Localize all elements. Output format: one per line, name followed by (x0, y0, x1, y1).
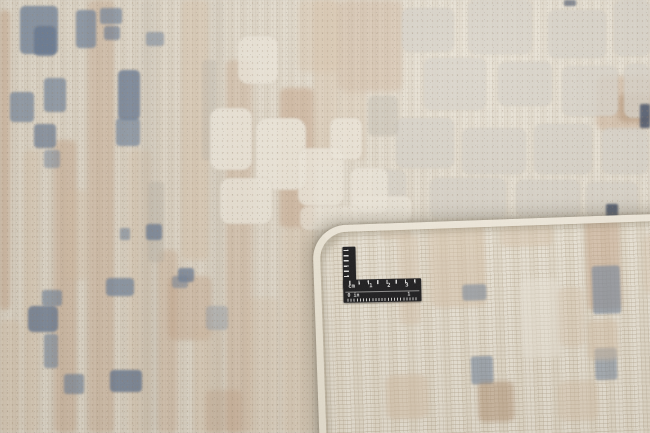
pattern-patch (592, 265, 622, 314)
pattern-patch (519, 277, 562, 358)
pattern-patch (76, 10, 96, 48)
pattern-patch (106, 278, 134, 296)
pattern-patch (338, 0, 402, 92)
pattern-patch (146, 224, 162, 240)
pattern-patch (564, 0, 576, 6)
pattern-patch (548, 10, 606, 58)
pattern-patch (24, 150, 38, 433)
rug-photo: cm 1 2 3 0 in 1 (0, 0, 650, 433)
pattern-patch (206, 306, 228, 330)
pattern-patch (116, 118, 140, 146)
pattern-patch (34, 124, 56, 148)
pattern-patch (110, 370, 142, 392)
pattern-patch (118, 70, 140, 120)
pattern-patch (64, 190, 88, 280)
ruler-cm-number: 1 (369, 284, 372, 290)
pattern-patch (516, 180, 580, 216)
pattern-patch (0, 320, 20, 433)
ruler-cm-number: 3 (405, 283, 408, 289)
pattern-patch (246, 298, 278, 433)
ruler-inch-scale: 0 in 1 (343, 291, 421, 303)
pattern-patch (500, 224, 553, 248)
pattern-patch (534, 124, 592, 174)
pattern-patch (368, 96, 398, 136)
pattern-patch (642, 233, 650, 294)
ruler-horizontal-arm: cm 1 2 3 0 in 1 (343, 278, 421, 303)
ruler-inch-number: 1 (407, 292, 410, 297)
pattern-patch (462, 128, 526, 174)
pattern-patch (558, 380, 599, 421)
pattern-patch (557, 287, 585, 348)
pattern-patch (640, 104, 650, 128)
pattern-patch (120, 228, 130, 240)
ruler: cm 1 2 3 0 in 1 (340, 243, 425, 307)
pattern-patch (148, 182, 164, 262)
pattern-patch (44, 334, 58, 368)
pattern-patch (298, 0, 340, 72)
pattern-patch (430, 178, 506, 218)
pattern-patch (44, 150, 60, 168)
pattern-patch (402, 8, 454, 52)
pattern-patch (42, 290, 62, 306)
pattern-patch (471, 356, 494, 385)
pattern-patch (44, 78, 66, 112)
pattern-patch (28, 306, 58, 332)
pattern-patch (104, 26, 120, 40)
pattern-patch (210, 108, 252, 170)
pattern-patch (385, 374, 429, 419)
pattern-patch (562, 66, 618, 116)
pattern-patch (100, 8, 122, 24)
pattern-patch (0, 10, 10, 310)
pattern-patch (380, 227, 410, 240)
pattern-patch (64, 374, 84, 394)
pattern-patch (396, 118, 454, 168)
pattern-patch (468, 0, 532, 54)
pattern-patch (34, 26, 56, 56)
pattern-patch (602, 128, 648, 174)
pattern-patch (424, 58, 486, 110)
ruler-inch-zero-label: 0 in (347, 293, 359, 298)
pattern-patch (172, 276, 188, 288)
pattern-patch (146, 32, 164, 46)
pattern-patch (220, 178, 272, 224)
pattern-patch (614, 0, 650, 56)
pattern-patch (478, 381, 515, 422)
pattern-patch (282, 228, 314, 433)
pattern-patch (330, 118, 362, 160)
ruler-cm-number: 2 (387, 284, 390, 290)
pattern-patch (88, 0, 114, 433)
pattern-patch (462, 284, 487, 301)
pattern-patch (10, 92, 34, 122)
pattern-patch (587, 319, 618, 360)
pattern-patch (238, 36, 278, 84)
ruler-cm-unit-label: cm (348, 285, 355, 291)
pattern-patch (498, 62, 552, 106)
